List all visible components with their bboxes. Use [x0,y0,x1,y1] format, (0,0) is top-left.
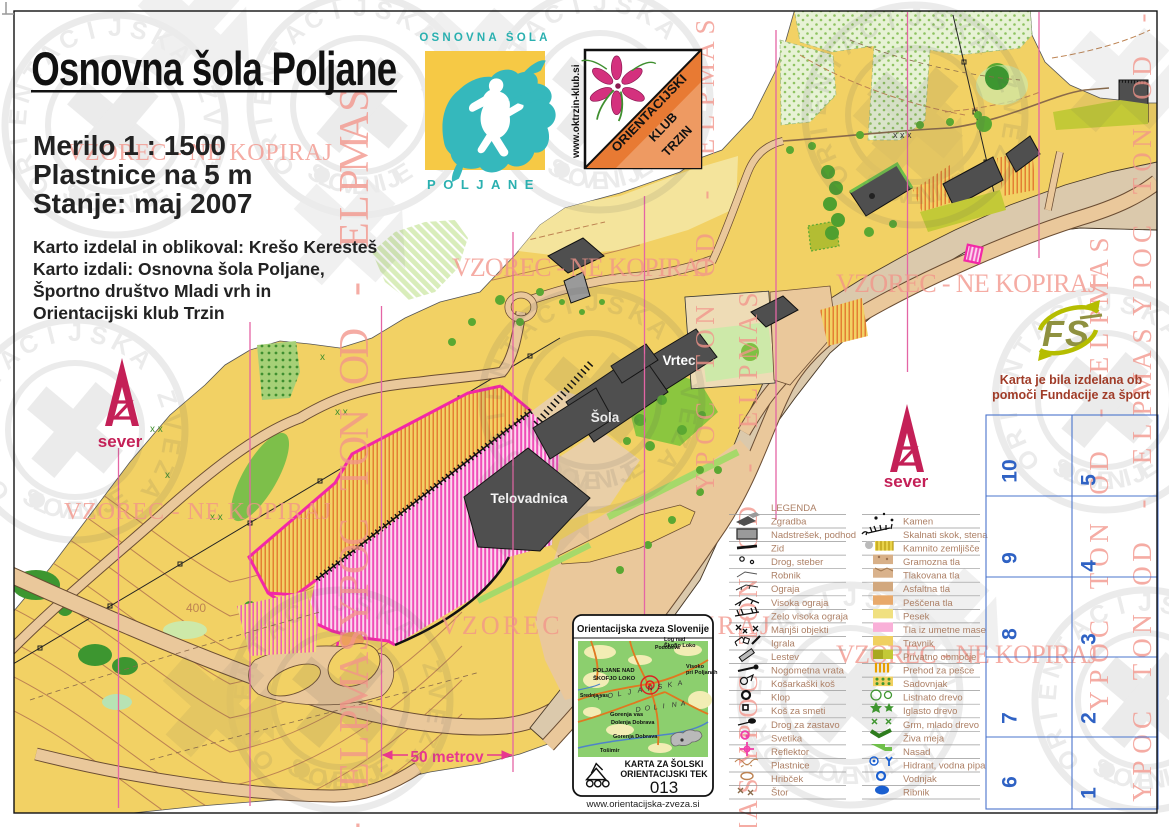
svg-text:T: T [332,465,378,491]
svg-text:D: D [690,233,720,253]
svg-text:-: - [733,464,763,473]
svg-text:E: E [332,762,378,788]
svg-text:Ograja: Ograja [771,584,800,595]
svg-text:J: J [843,584,857,612]
svg-text:sever: sever [98,432,143,451]
svg-text:J: J [108,14,122,42]
svg-text:Iglasto drevo: Iglasto drevo [903,706,957,717]
svg-text:E: E [1127,448,1157,465]
svg-text:O: O [690,257,720,277]
svg-text:P: P [1127,400,1157,415]
svg-text:Y: Y [1127,296,1157,316]
svg-text:Srednja vas: Srednja vas [580,693,608,699]
svg-text:Klop: Klop [771,693,790,704]
svg-text:Kamnito zemljišče: Kamnito zemljišče [903,544,980,555]
svg-text:C: C [1127,711,1157,729]
svg-text:V: V [197,108,226,127]
svg-text:6: 6 [999,776,1022,788]
svg-text:Koš za smeti: Koš za smeti [771,706,825,717]
svg-text:O: O [1127,638,1157,658]
svg-text:-: - [332,282,378,296]
svg-text:C: C [690,402,720,420]
svg-text:T: T [690,354,720,371]
svg-text:Y: Y [332,598,378,628]
svg-text:Privatno območje: Privatno območje [903,652,976,663]
svg-text:O: O [332,544,378,574]
svg-text:9: 9 [999,552,1022,564]
svg-text:S: S [733,778,763,793]
svg-text:POLJANE: POLJANE [427,177,541,192]
svg-text:-: - [1127,500,1157,509]
svg-text:Kamen: Kamen [903,517,933,528]
svg-text:P: P [1127,760,1157,775]
svg-text:P: P [733,364,763,379]
svg-text:Sadovnjak: Sadovnjak [903,679,948,690]
svg-text:Peščena tla: Peščena tla [903,598,953,609]
svg-text:P: P [690,451,720,466]
svg-text:E: E [4,108,33,127]
svg-text:Tošimir: Tošimir [600,748,620,754]
svg-text:M: M [733,336,763,360]
svg-text:ŠKOFJO LOKO: ŠKOFJO LOKO [593,674,636,682]
svg-text:T: T [1127,177,1157,194]
svg-text:D: D [1084,451,1114,471]
svg-text:10: 10 [999,459,1022,482]
svg-text:A: A [1127,350,1157,370]
svg-text:Dolenja Dobrava: Dolenja Dobrava [611,720,655,726]
svg-text:5: 5 [1078,474,1101,486]
svg-text:sever: sever [884,472,929,491]
svg-text:Zelo visoka ograja: Zelo visoka ograja [771,611,849,622]
svg-text:J: J [1138,589,1152,617]
svg-text:J: J [68,319,82,347]
svg-text:KARTA ZA ŠOLSKI: KARTA ZA ŠOLSKI [625,758,704,769]
svg-text:P: P [332,169,378,192]
svg-text:C: C [332,518,378,546]
svg-text:OSNOVNA ŠOLA: OSNOVNA ŠOLA [419,31,550,44]
svg-text:VZOREC - NE KOPIRAJ: VZOREC - NE KOPIRAJ [836,269,1098,298]
svg-text:V: V [157,413,186,432]
svg-text:Zid: Zid [771,544,784,555]
svg-text:Nasad: Nasad [903,747,930,758]
svg-text:VZOREC - NE KOPIRAJ: VZOREC - NE KOPIRAJ [64,499,331,525]
svg-text:Košarkaški koš: Košarkaški koš [771,679,835,690]
svg-text:M: M [332,675,378,712]
svg-text:L: L [1127,424,1157,441]
svg-text:Karta je bila izdelana ob: Karta je bila izdelana ob [1000,373,1143,387]
svg-text:LEGENDA: LEGENDA [771,503,817,514]
svg-text:Nadstrešek, podhod: Nadstrešek, podhod [771,530,856,541]
svg-text:Skalnati skok, stena: Skalnati skok, stena [903,530,988,541]
svg-text:Karto izdelal in oblikoval: Kr: Karto izdelal in oblikoval: Krešo Kerest… [33,237,378,257]
svg-text:O: O [690,329,720,349]
svg-text:POLJANE NAD: POLJANE NAD [593,668,635,674]
svg-text:S: S [690,19,720,34]
svg-text:Hidrant, vodna pipa: Hidrant, vodna pipa [903,760,986,771]
svg-text:Plastnice: Plastnice [771,760,810,771]
svg-text:Drog za zastavo: Drog za zastavo [771,720,840,731]
svg-text:N: N [332,409,378,439]
svg-text:O: O [1127,80,1157,100]
svg-text:Robnik: Robnik [771,571,801,582]
svg-text:8: 8 [999,628,1022,640]
svg-text:P: P [1127,274,1157,289]
svg-text:O: O [1084,643,1114,663]
svg-text:1: 1 [1078,787,1101,799]
svg-text:T: T [733,627,763,644]
svg-text:Orientacijska zveza Slovenije: Orientacijska zveza Slovenije [577,623,709,635]
svg-text:Svetika: Svetika [771,733,803,744]
svg-text:Gorenja Dobrava: Gorenja Dobrava [613,734,658,740]
svg-text:7: 7 [999,712,1022,724]
svg-text:N: N [690,305,720,325]
svg-text:Ribnik: Ribnik [903,788,930,799]
svg-text:N: N [1127,128,1157,148]
svg-text:-: - [332,822,378,827]
svg-text:O: O [1127,248,1157,268]
svg-text:M: M [733,822,763,827]
svg-text:M: M [332,135,378,172]
svg-text:E: E [804,98,833,117]
svg-text:Y: Y [690,473,720,493]
svg-text:pomoči Fundacije za šport: pomoči Fundacije za šport [992,388,1150,402]
svg-text:pri Poljanah: pri Poljanah [686,670,718,676]
svg-text:O: O [332,355,378,385]
svg-text:N: N [1084,523,1114,543]
svg-text:T: T [1127,663,1157,680]
svg-text:-: - [690,191,720,200]
svg-text:www.orientacijska-zveza.si: www.orientacijska-zveza.si [586,799,700,810]
svg-text:D: D [1127,542,1157,562]
svg-text:x: x [320,352,325,363]
svg-text:Listnato drevo: Listnato drevo [903,693,963,704]
svg-text:O: O [1127,566,1157,586]
svg-text:4: 4 [1078,560,1101,572]
svg-text:T: T [1084,572,1114,589]
svg-text:E: E [733,412,763,429]
svg-text:Grm, mlado drevo: Grm, mlado drevo [903,720,979,731]
svg-text:3: 3 [1078,633,1101,645]
svg-text:Lestev: Lestev [771,652,799,663]
svg-text:Asfaltna tla: Asfaltna tla [903,584,951,595]
svg-text:A: A [733,314,763,334]
svg-text:V: V [997,98,1026,117]
svg-text:L: L [733,388,763,405]
svg-text:Reflektor: Reflektor [771,747,809,758]
svg-text:Y: Y [1127,782,1157,802]
svg-text:Plastnice na 5 m: Plastnice na 5 m [33,159,252,190]
svg-text:www.oktrzin-klub.si: www.oktrzin-klub.si [571,64,582,159]
svg-text:N: N [733,578,763,598]
svg-text:S: S [733,292,763,307]
svg-text:O: O [690,425,720,445]
svg-text:O: O [332,436,378,466]
svg-text:E: E [481,383,510,402]
svg-text:Nogometna vrata: Nogometna vrata [771,666,845,677]
svg-text:Pesek: Pesek [903,611,930,622]
svg-text:Osnovna šola Poljane: Osnovna šola Poljane [31,43,396,95]
svg-text:Stanje: maj 2007: Stanje: maj 2007 [33,188,252,219]
svg-text:D: D [635,706,641,714]
svg-text:V: V [674,383,703,402]
svg-text:Travnik: Travnik [903,639,934,650]
svg-text:S: S [1084,237,1114,252]
svg-text:L: L [332,735,378,761]
svg-text:Športno društvo Mladi vrh in: Športno društvo Mladi vrh in [33,280,271,301]
svg-text:S: S [332,628,378,651]
svg-text:-: - [1084,409,1114,418]
svg-text:Štor: Štor [771,788,788,799]
svg-text:Vodnjak: Vodnjak [903,774,937,785]
svg-text:-: - [1127,14,1157,23]
svg-text:N: N [1127,614,1157,634]
svg-text:Tlakovana tla: Tlakovana tla [903,571,960,582]
svg-text:P: P [332,709,378,732]
svg-text:VZOREC - NE KOPIRAJ: VZOREC - NE KOPIRAJ [452,253,710,282]
svg-text:Prehod za pešce: Prehod za pešce [903,666,974,677]
svg-text:C: C [1127,225,1157,243]
svg-text:Visoka ograja: Visoka ograja [771,598,829,609]
svg-text:Manjši objekti: Manjši objekti [771,625,829,636]
svg-text:V: V [422,683,451,702]
svg-text:Zgradba: Zgradba [771,517,807,528]
svg-text:Karto izdali: Osnovna šola Pol: Karto izdali: Osnovna šola Poljane, [33,259,325,279]
svg-text:Drog, steber: Drog, steber [771,557,823,568]
svg-text:D: D [1127,56,1157,76]
svg-text:E: E [1034,683,1063,702]
svg-text:400: 400 [186,601,206,615]
svg-text:J: J [593,0,607,17]
svg-text:Škofjo Loko: Škofjo Loko [664,641,696,649]
svg-text:2: 2 [1078,712,1101,724]
svg-text:S: S [1127,328,1157,343]
svg-text:Igrala: Igrala [771,639,795,650]
svg-text:P: P [1084,669,1114,684]
svg-text:O: O [1127,152,1157,172]
svg-text:Merilo 1 : 1500: Merilo 1 : 1500 [33,130,226,161]
svg-text:Y: Y [1084,691,1114,711]
svg-text:Gramozna tla: Gramozna tla [903,557,961,568]
svg-text:J: J [585,289,599,317]
svg-text:L: L [332,195,378,221]
svg-text:P: P [332,574,378,597]
svg-text:A: A [733,800,763,820]
svg-text:Orientacijski klub Trzin: Orientacijski klub Trzin [33,303,225,323]
svg-text:E: E [1084,357,1114,374]
svg-text:Hribček: Hribček [771,774,803,785]
svg-text:D: D [332,328,378,358]
svg-text:J: J [908,4,922,32]
svg-text:Živa meja: Živa meja [903,733,945,744]
svg-text:A: A [1084,259,1114,279]
svg-text:013: 013 [650,778,678,797]
svg-text:Tla iz umetne mase: Tla iz umetne mase [903,625,986,636]
